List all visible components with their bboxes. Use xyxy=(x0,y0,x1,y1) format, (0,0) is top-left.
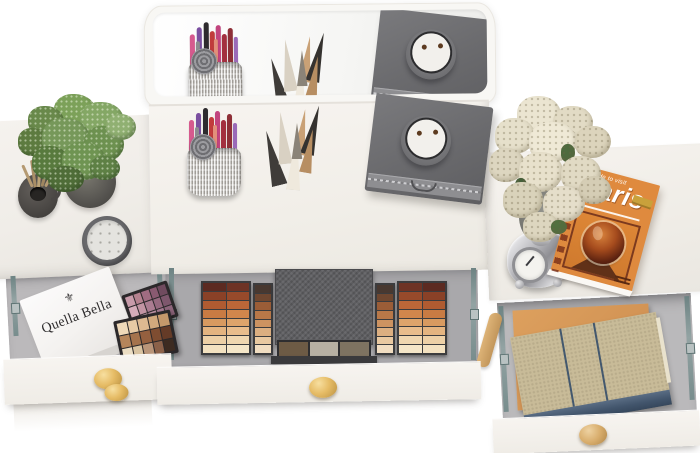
vanity-scene: ⚜ Quella Bella xyxy=(0,0,700,453)
potted-plant-foliage xyxy=(18,92,146,206)
shade-swatch xyxy=(255,320,271,328)
shade-swatch xyxy=(377,294,393,302)
shade-swatch xyxy=(203,310,226,318)
alarm-clock-foot xyxy=(553,278,562,287)
shade-swatch xyxy=(279,342,308,356)
shade-swatch xyxy=(255,294,271,302)
left-drawer-front xyxy=(3,353,173,405)
lid-dot xyxy=(422,44,428,50)
candle-wax-top xyxy=(87,220,127,260)
round-case-lid xyxy=(403,115,450,162)
mirror-surface xyxy=(153,9,488,96)
shade-swatch xyxy=(158,313,170,327)
jewelry-box-reflection xyxy=(370,9,487,96)
lid-dot xyxy=(438,43,444,49)
shade-swatch xyxy=(255,328,271,336)
shade-swatch xyxy=(255,302,271,310)
palette-left-wing xyxy=(201,281,251,355)
shade-swatch xyxy=(255,345,271,353)
hydrangea-flowers xyxy=(489,96,623,252)
shade-swatch xyxy=(423,327,446,335)
shade-swatch xyxy=(423,292,446,300)
center-drawer-front xyxy=(157,361,482,405)
brush-cup-reflection xyxy=(185,22,246,97)
leaf xyxy=(551,220,567,234)
shade-swatch xyxy=(377,320,393,328)
round-case xyxy=(403,27,458,82)
shade-swatch xyxy=(227,301,250,309)
shade-swatch xyxy=(227,327,250,335)
shade-swatch xyxy=(203,292,226,300)
shade-swatch xyxy=(227,310,250,318)
brush-cup xyxy=(184,108,244,200)
lid-dot xyxy=(417,130,423,136)
shade-swatch xyxy=(377,337,393,345)
candle-jar xyxy=(82,216,132,266)
flower-cluster xyxy=(579,176,611,204)
shade-swatch xyxy=(163,338,175,352)
shade-swatch xyxy=(377,328,393,336)
shade-swatch xyxy=(423,336,446,344)
shade-swatch xyxy=(377,302,393,310)
shade-swatch xyxy=(377,345,393,353)
shade-swatch xyxy=(399,310,422,318)
shade-swatch xyxy=(340,342,369,356)
notebook-cover-line xyxy=(593,323,609,401)
shade-swatch xyxy=(399,336,422,344)
drawer-knob-wood xyxy=(579,424,608,446)
alarm-clock-foot xyxy=(515,280,524,289)
shade-swatch xyxy=(423,345,446,353)
palette-inner-left-wing xyxy=(253,283,273,355)
shade-swatch xyxy=(377,285,393,293)
leaf-clump xyxy=(48,166,84,192)
shade-swatch xyxy=(399,283,422,291)
makeup-palette-set xyxy=(201,269,447,365)
shade-swatch xyxy=(203,283,226,291)
shade-swatch xyxy=(423,301,446,309)
shade-swatch xyxy=(227,283,250,291)
shade-swatch xyxy=(423,283,446,291)
palette-right-wing xyxy=(397,281,447,355)
shade-swatch xyxy=(310,342,339,356)
shade-swatch xyxy=(423,319,446,327)
palette-inner-right-wing xyxy=(375,283,395,355)
drawer-knob-gold xyxy=(104,384,129,402)
drawer-knob-gold xyxy=(309,377,337,398)
jewelry-box-handle xyxy=(415,94,442,97)
shade-swatch xyxy=(399,301,422,309)
drawer-rail xyxy=(471,268,476,360)
shade-swatch xyxy=(255,337,271,345)
shade-swatch xyxy=(399,292,422,300)
flower-cluster xyxy=(575,126,611,158)
lid-dot xyxy=(433,129,439,135)
shade-swatch xyxy=(203,345,226,353)
rolled-brush xyxy=(191,48,217,74)
round-case-lid xyxy=(408,29,454,75)
shade-swatch xyxy=(203,301,226,309)
shade-swatch xyxy=(255,311,271,319)
shade-swatch xyxy=(399,345,422,353)
shade-swatch xyxy=(203,327,226,335)
cosmetic-tubes-group xyxy=(262,104,328,196)
rolled-brush xyxy=(190,134,216,160)
notebook-cover-line xyxy=(560,328,576,406)
shade-swatch xyxy=(227,336,250,344)
jewelry-box xyxy=(364,93,493,205)
shade-swatch xyxy=(255,285,271,293)
shade-swatch xyxy=(399,319,422,327)
shade-swatch xyxy=(227,292,250,300)
vanity-mirror xyxy=(143,2,496,108)
shade-swatch xyxy=(227,319,250,327)
shade-swatch xyxy=(203,336,226,344)
round-case xyxy=(398,113,454,169)
alarm-clock-face xyxy=(512,247,548,283)
shade-swatch xyxy=(227,345,250,353)
shade-swatch xyxy=(377,311,393,319)
shade-swatch xyxy=(423,310,446,318)
shade-swatch xyxy=(203,319,226,327)
palette-center-lid xyxy=(275,269,373,345)
cosmetic-tubes-reflection xyxy=(267,31,334,97)
shade-swatch xyxy=(399,327,422,335)
leaf-clump xyxy=(90,156,120,180)
shade-swatch xyxy=(161,326,173,340)
leaf-clump xyxy=(106,114,136,140)
